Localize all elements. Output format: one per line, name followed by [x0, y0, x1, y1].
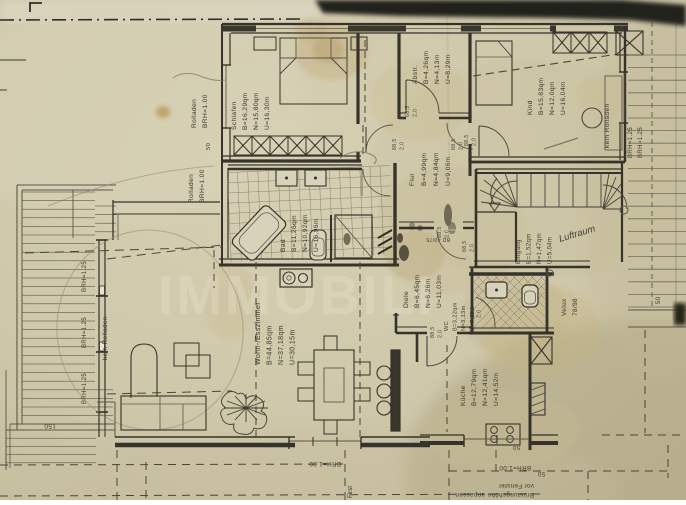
svg-text:N=6,26m: N=6,26m — [425, 278, 432, 308]
svg-text:Eingang: Eingang — [516, 239, 522, 264]
svg-text:B=1,52qm: B=1,52qm — [527, 233, 533, 264]
svg-text:U=9,06m: U=9,06m — [445, 156, 452, 186]
svg-text:U=16,04m: U=16,04m — [560, 81, 567, 115]
svg-text:BRH=1.00: BRH=1.00 — [309, 460, 341, 467]
svg-text:150: 150 — [44, 422, 56, 429]
svg-text:First: First — [347, 486, 354, 498]
svg-text:B=3,22qm: B=3,22qm — [453, 302, 459, 331]
svg-text:88,5: 88,5 — [392, 138, 398, 150]
svg-text:BRH=1.00: BRH=1.00 — [199, 169, 206, 203]
svg-text:BRH=1.00: BRH=1.00 — [202, 94, 209, 128]
svg-text:88,5: 88,5 — [451, 138, 457, 150]
svg-text:Flur: Flur — [409, 173, 416, 186]
svg-text:N=12,41qm: N=12,41qm — [482, 368, 489, 406]
svg-text:78/98: 78/98 — [572, 298, 579, 316]
svg-text:2,0: 2,0 — [477, 310, 483, 318]
svg-text:BRH=1.00: BRH=1.00 — [499, 464, 531, 471]
svg-text:BRH=1.25: BRH=1.25 — [628, 127, 634, 158]
svg-text:B=6,45qm: B=6,45qm — [414, 274, 421, 308]
svg-text:50: 50 — [537, 470, 545, 476]
svg-text:BRH=1.25: BRH=1.25 — [82, 373, 88, 404]
svg-text:N=4,13m: N=4,13m — [434, 54, 441, 84]
svg-text:50: 50 — [513, 444, 520, 450]
svg-text:Velux: Velux — [561, 298, 568, 316]
svg-text:88,5: 88,5 — [462, 240, 468, 252]
svg-text:Schlafen: Schlafen — [231, 101, 238, 130]
svg-text:2,0: 2,0 — [459, 142, 465, 150]
svg-text:BRH=1.25: BRH=1.25 — [82, 261, 88, 292]
svg-text:Rolladen: Rolladen — [188, 174, 195, 203]
svg-text:B=11,26qm: B=11,26qm — [291, 215, 298, 252]
svg-text:U=16,96m: U=16,96m — [313, 218, 320, 252]
svg-text:B=4,99qm: B=4,99qm — [421, 152, 428, 186]
svg-text:U=30,15m: U=30,15m — [290, 329, 297, 365]
svg-text:BRH=1.25: BRH=1.25 — [82, 317, 88, 348]
svg-text:B=44,85qm: B=44,85qm — [267, 325, 274, 365]
svg-text:50: 50 — [656, 296, 662, 304]
svg-text:B=4,26qm: B=4,26qm — [423, 50, 430, 84]
svg-text:U=11,03m: U=11,03m — [436, 275, 443, 308]
svg-text:kein Rolladen: kein Rolladen — [604, 103, 611, 148]
svg-text:U=8,29m: U=8,29m — [445, 54, 452, 84]
svg-text:IMMOBILI: IMMOBILI — [158, 264, 436, 326]
svg-text:U=7,29m: U=7,29m — [470, 305, 476, 331]
svg-text:N=15,80qm: N=15,80qm — [253, 92, 260, 130]
svg-text:2,0: 2,0 — [400, 142, 406, 150]
svg-text:B=16,29qm: B=16,29qm — [242, 92, 249, 130]
svg-text:N=4,84qm: N=4,84qm — [433, 152, 440, 186]
svg-text:kein Rolladen: kein Rolladen — [102, 316, 109, 360]
svg-text:68,5: 68,5 — [405, 105, 411, 117]
svg-text:2,0: 2,0 — [438, 330, 444, 338]
svg-text:U=14,52m: U=14,52m — [493, 372, 500, 406]
svg-text:WC: WC — [444, 321, 450, 331]
svg-text:50: 50 — [206, 143, 212, 150]
svg-text:vor Fenster: vor Fenster — [498, 482, 534, 489]
svg-text:N=12,0qm: N=12,0qm — [549, 81, 556, 115]
svg-text:2,0: 2,0 — [413, 109, 419, 117]
svg-text:N=1,47qm: N=1,47qm — [537, 233, 543, 264]
svg-text:Bad: Bad — [280, 239, 287, 252]
svg-text:Brüstungshöhe anpassen: Brüstungshöhe anpassen — [455, 491, 534, 498]
svg-text:2,0: 2,0 — [470, 244, 476, 252]
svg-text:Diele: Diele — [403, 291, 410, 308]
svg-text:U=16,30m: U=16,30m — [264, 96, 271, 130]
svg-text:2,0: 2,0 — [472, 138, 478, 146]
svg-text:N=10,92qm: N=10,92qm — [302, 214, 309, 252]
svg-text:Küche: Küche — [460, 385, 467, 406]
svg-text:Rolladen: Rolladen — [191, 99, 198, 128]
svg-text:N=3,13m: N=3,13m — [461, 305, 467, 331]
svg-text:88,5: 88,5 — [430, 326, 436, 338]
svg-text:BRH=1.25: BRH=1.25 — [638, 127, 644, 158]
svg-text:U=5,04m: U=5,04m — [548, 237, 554, 264]
svg-text:B=12,79qm: B=12,79qm — [471, 368, 478, 406]
svg-text:B=15,83qm: B=15,83qm — [538, 77, 545, 115]
svg-text:Kind: Kind — [527, 100, 534, 115]
svg-text:N=37,18qm: N=37,18qm — [278, 325, 285, 365]
